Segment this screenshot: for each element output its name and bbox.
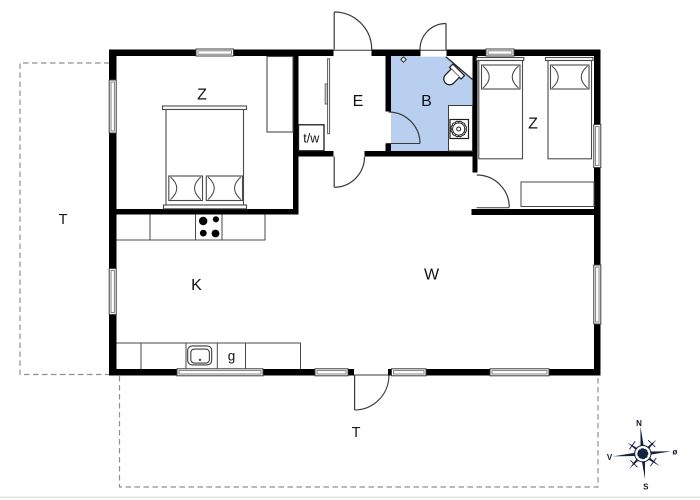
svg-text:K: K bbox=[191, 277, 202, 294]
svg-text:t/w: t/w bbox=[303, 132, 320, 146]
svg-text:Z: Z bbox=[528, 116, 538, 133]
svg-text:g: g bbox=[228, 349, 236, 364]
svg-text:T: T bbox=[352, 425, 361, 441]
svg-text:B: B bbox=[421, 93, 432, 110]
svg-text:N: N bbox=[636, 419, 642, 428]
svg-text:E: E bbox=[353, 93, 364, 110]
svg-text:Z: Z bbox=[197, 87, 207, 104]
svg-text:S: S bbox=[643, 483, 649, 492]
svg-text:ø: ø bbox=[673, 448, 678, 457]
svg-text:W: W bbox=[424, 267, 440, 284]
svg-text:V: V bbox=[607, 453, 613, 462]
svg-text:T: T bbox=[59, 212, 68, 228]
